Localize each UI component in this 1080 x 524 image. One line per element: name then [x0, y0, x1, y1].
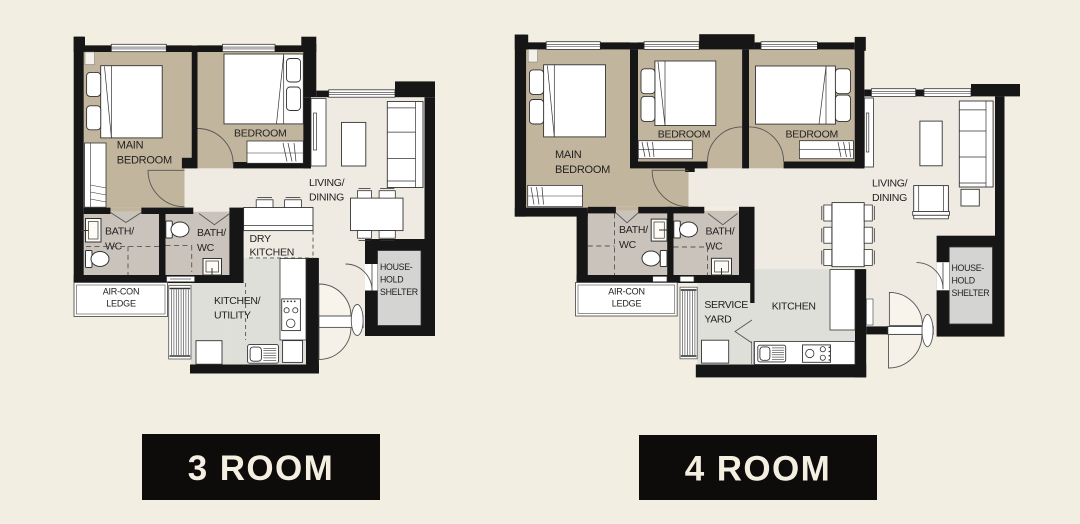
svg-text:BATH/: BATH/	[619, 224, 648, 236]
svg-text:HOLD: HOLD	[952, 276, 975, 286]
svg-text:BEDROOM: BEDROOM	[658, 129, 711, 141]
svg-text:DRY: DRY	[250, 233, 272, 245]
svg-text:BATH/: BATH/	[105, 226, 134, 238]
svg-text:SHELTER: SHELTER	[380, 287, 418, 297]
svg-text:3 ROOM: 3 ROOM	[188, 449, 334, 488]
svg-text:AIR-CON: AIR-CON	[608, 287, 645, 297]
svg-text:LIVING/: LIVING/	[872, 178, 908, 190]
svg-text:DINING: DINING	[309, 192, 344, 204]
svg-text:UTILITY: UTILITY	[214, 310, 251, 322]
svg-text:KITCHEN: KITCHEN	[250, 247, 295, 259]
svg-text:MAIN: MAIN	[117, 140, 144, 152]
svg-text:YARD: YARD	[704, 314, 732, 326]
svg-text:LEDGE: LEDGE	[612, 299, 642, 309]
svg-text:HOUSE-: HOUSE-	[380, 262, 413, 272]
svg-text:HOLD: HOLD	[380, 275, 403, 285]
svg-text:WC: WC	[706, 241, 724, 253]
svg-text:SHELTER: SHELTER	[952, 288, 990, 298]
svg-text:AIR-CON: AIR-CON	[103, 287, 140, 297]
svg-text:LEDGE: LEDGE	[106, 299, 136, 309]
svg-text:MAIN: MAIN	[555, 149, 582, 161]
svg-text:DINING: DINING	[872, 192, 907, 204]
svg-text:4 ROOM: 4 ROOM	[685, 450, 831, 489]
svg-text:KITCHEN: KITCHEN	[772, 301, 816, 313]
svg-text:BATH/: BATH/	[706, 226, 735, 238]
svg-text:WC: WC	[197, 242, 215, 254]
svg-text:HOUSE-: HOUSE-	[952, 263, 985, 273]
svg-text:LIVING/: LIVING/	[309, 177, 345, 189]
svg-text:BEDROOM: BEDROOM	[234, 128, 287, 140]
svg-text:SERVICE: SERVICE	[704, 299, 748, 311]
svg-text:BATH/: BATH/	[197, 227, 226, 239]
svg-text:WC: WC	[619, 239, 637, 251]
svg-text:BEDROOM: BEDROOM	[555, 164, 610, 176]
svg-text:BEDROOM: BEDROOM	[117, 155, 172, 167]
svg-text:BEDROOM: BEDROOM	[786, 129, 839, 141]
svg-text:KITCHEN/: KITCHEN/	[214, 295, 261, 307]
